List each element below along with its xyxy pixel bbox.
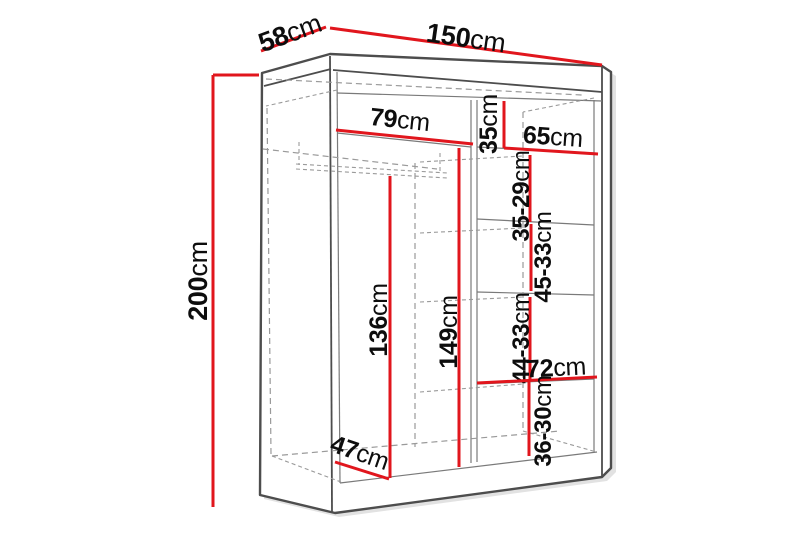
wardrobe-dimensions-diagram: 200cm 58cm 150cm 79cm 35cm 65cm 35-29cm … [0,0,800,533]
dim-right-width-label: 65cm [522,121,584,153]
dimension-right-gap-4: 36-30cm [529,375,557,466]
dim-gap2-label: 45-33cm [530,211,557,302]
dim-middle-label: 149cm [435,295,463,369]
dim-right-top-label: 35cm [475,94,503,154]
dimension-right-gap-2: 45-33cm [530,211,557,302]
dimension-height: 200cm [183,75,259,507]
dimension-depth: 58cm [254,8,326,58]
diagram-canvas: 200cm 58cm 150cm 79cm 35cm 65cm 35-29cm … [0,0,800,533]
dim-hanging-label: 136cm [365,283,393,357]
dim-depth-label: 58cm [254,8,325,58]
dim-height-label: 200cm [183,241,213,321]
dim-width-label: 150cm [425,18,508,59]
dimension-right-top-height: 35cm [475,94,504,154]
dim-gap4-label: 36-30cm [530,375,557,466]
